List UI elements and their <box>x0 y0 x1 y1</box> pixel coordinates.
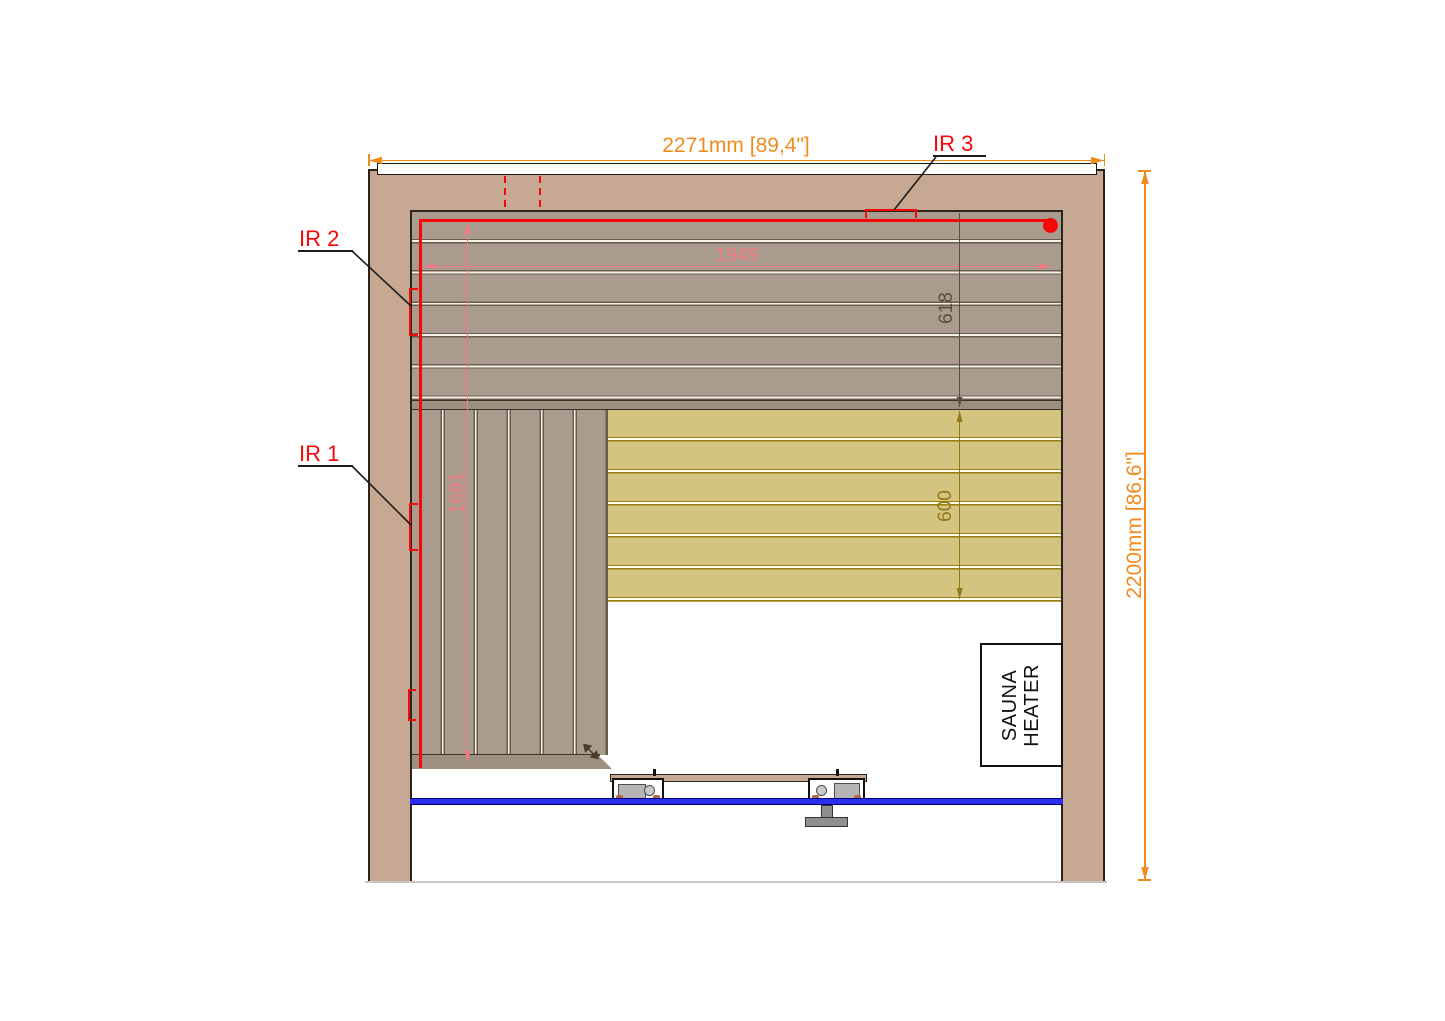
dim-width-tick-right <box>1104 154 1106 166</box>
door-glass-rail <box>410 798 1063 805</box>
roller-hanger-right <box>836 769 839 776</box>
dim-1681-text: 1681 <box>447 469 469 517</box>
dim-600-line <box>959 411 961 599</box>
dim-height-tick-bottom <box>1138 879 1151 881</box>
bench-top-rail <box>412 400 1061 410</box>
dim-width-tick-left <box>368 154 370 166</box>
upper-wall-planks <box>412 212 1061 400</box>
ir1-label: IR 1 <box>299 441 339 467</box>
dim-width-text: 2271mm [89,4"] <box>636 134 836 158</box>
ir-wire-vertical <box>419 219 422 768</box>
dim-618-text: 618 <box>936 288 958 328</box>
ir1-bracket <box>409 503 418 551</box>
ir1-underline <box>298 465 353 467</box>
ir2-underline <box>298 250 353 252</box>
backrest-planks <box>608 410 1061 602</box>
cable-dashed-line-1 <box>504 176 507 208</box>
sensor-bracket <box>408 689 416 721</box>
ir3-underline <box>933 155 986 157</box>
sauna-heater-box: SAUNA HEATER <box>980 643 1063 767</box>
dim-1949-text: 1949 <box>689 245 785 267</box>
roller-hanger-left <box>653 769 656 776</box>
floor-guide-base <box>805 817 848 827</box>
ceiling-strip <box>377 163 1097 175</box>
dim-height-text: 2200mm [86,6"] <box>1123 440 1147 610</box>
cable-dashed-line-2 <box>539 176 542 208</box>
ir3-bracket <box>865 209 917 218</box>
floor-line <box>365 881 1107 883</box>
bench-base-rail <box>412 755 612 769</box>
dim-618-line <box>959 213 961 407</box>
dim-600-text: 600 <box>935 486 957 526</box>
sauna-heater-label: SAUNA HEATER <box>999 664 1044 747</box>
ir-wire-horizontal <box>420 219 1049 222</box>
ir2-label: IR 2 <box>299 226 339 252</box>
power-point-dot <box>1043 218 1058 233</box>
dim-width-line <box>369 160 1104 162</box>
ir2-bracket <box>409 288 418 336</box>
bench-front-planks <box>412 410 608 755</box>
sauna-elevation-drawing: SAUNA HEATER IR 3 IR 2 IR 1 1949 1681 <box>0 0 1445 1021</box>
dim-height-tick-top <box>1138 170 1151 172</box>
ir3-label: IR 3 <box>933 131 973 157</box>
